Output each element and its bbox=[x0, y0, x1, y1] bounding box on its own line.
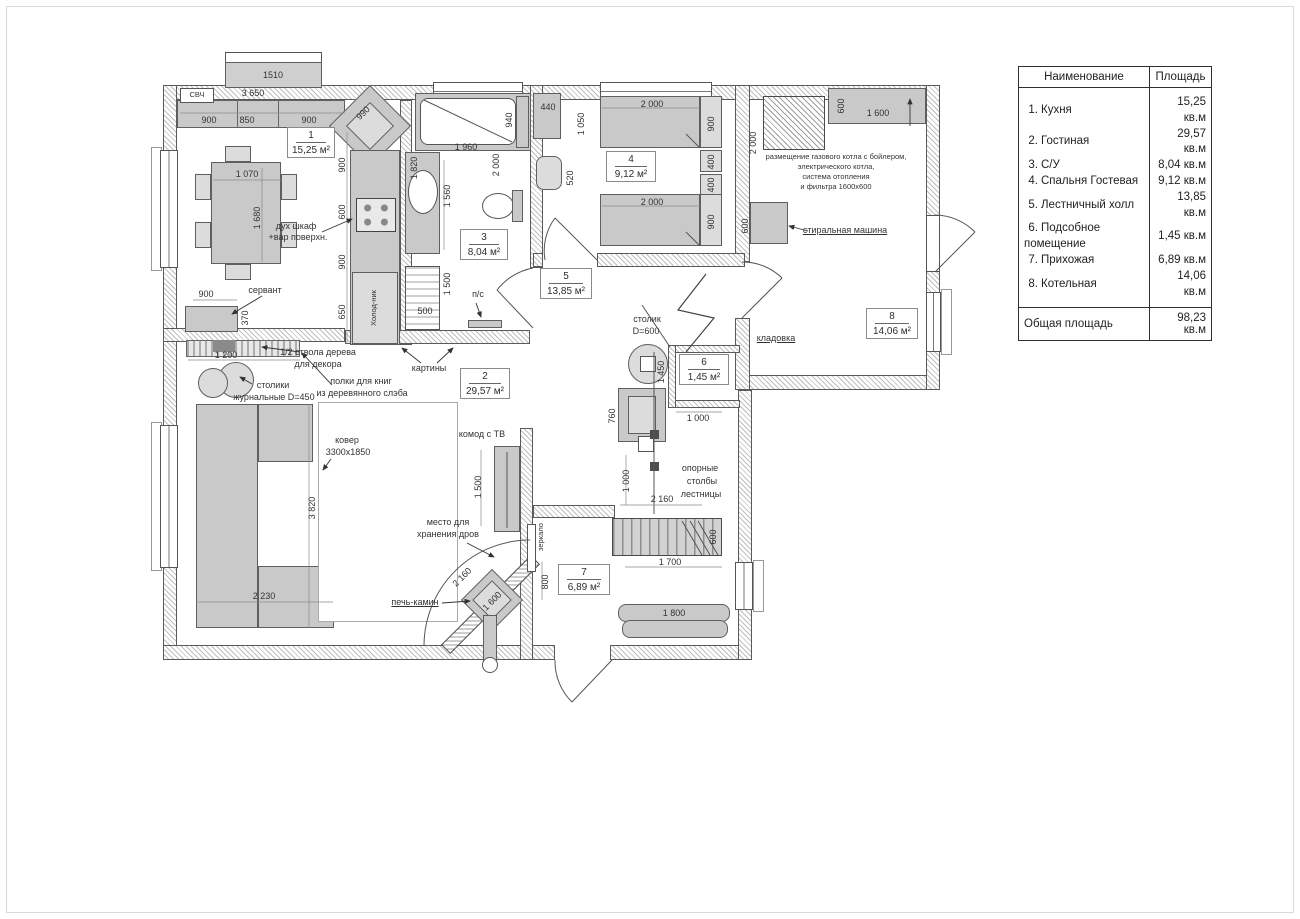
staircase bbox=[612, 518, 722, 556]
legend-room-name: 2.Гостиная bbox=[1019, 127, 1150, 159]
fridge-label: Холод-ник bbox=[369, 290, 379, 326]
stair-post bbox=[650, 430, 659, 439]
window-living bbox=[160, 425, 178, 568]
room-area: 15,25 м² bbox=[290, 143, 332, 156]
carpet-label: 3300х1850 bbox=[326, 447, 371, 457]
dim-wardrobe: 1 700 bbox=[659, 557, 682, 567]
dim: 800 bbox=[540, 574, 550, 589]
dim-bed-width: 900 bbox=[706, 116, 716, 131]
dim-sofa: 2 230 bbox=[253, 591, 276, 601]
oven-label: +вар поверхн. bbox=[269, 232, 328, 242]
book-shelves-label: из деревянного слэба bbox=[316, 388, 407, 398]
toilet-tank bbox=[512, 190, 523, 222]
legend-room-area: 1,45 кв.м bbox=[1149, 221, 1211, 253]
legend-row: 1.Кухня15,25 кв.м bbox=[1019, 88, 1212, 127]
dim: 440 bbox=[540, 102, 555, 112]
dim-bed-width: 900 bbox=[706, 214, 716, 229]
firewood-label: хранения дров bbox=[417, 529, 479, 539]
microwave-label: СВЧ bbox=[189, 90, 204, 100]
legend-room-area: 8,04 кв.м bbox=[1149, 158, 1211, 174]
carpet-label: ковер bbox=[335, 435, 359, 445]
dim-table-length: 1 680 bbox=[252, 207, 262, 230]
window-sill bbox=[753, 560, 764, 612]
room-label-closet: 6 1,45 м² bbox=[679, 354, 729, 385]
sideboard-label: сервант bbox=[248, 285, 281, 295]
legend-room-area: 29,57 кв.м bbox=[1149, 127, 1211, 159]
room-area: 8,04 м² bbox=[463, 245, 505, 258]
bench bbox=[622, 620, 728, 638]
floor-plan-page: 1510 3 650 900 850 900 990 1 070 1 680 9… bbox=[0, 0, 1300, 919]
legend-room-area: 9,12 кв.м bbox=[1149, 174, 1211, 190]
legend-room-number: 5. bbox=[1024, 198, 1038, 214]
dim: 520 bbox=[565, 170, 575, 185]
dim: 1 820 bbox=[409, 157, 419, 180]
dim: 600 bbox=[337, 204, 347, 219]
legend-room-name: 4.Спальня Гостевая bbox=[1019, 174, 1150, 190]
sideboard bbox=[185, 306, 238, 332]
sofa-chaise bbox=[258, 404, 313, 462]
coffee-table bbox=[198, 368, 228, 398]
room-number: 6 bbox=[688, 357, 720, 370]
bath-cabinet bbox=[405, 266, 440, 330]
dim-closet: 1 000 bbox=[687, 413, 710, 423]
dim-stairs: 2 160 bbox=[651, 494, 674, 504]
bedroom-cabinet bbox=[533, 93, 561, 139]
room-label-bedroom: 4 9,12 м² bbox=[606, 151, 656, 182]
window-kitchen bbox=[160, 150, 178, 268]
tv-commode-label: комод с ТВ bbox=[459, 429, 505, 439]
dim-shelf: 1 600 bbox=[867, 108, 890, 118]
dim: 1 050 bbox=[576, 113, 586, 136]
dim: 2 000 bbox=[748, 132, 758, 155]
dim: 900 bbox=[337, 254, 347, 269]
dim-bed: 2 000 bbox=[641, 99, 664, 109]
wall-boiler-left-a bbox=[735, 85, 750, 262]
oven-label: дух шкаф bbox=[276, 221, 317, 231]
book-shelves-label: полки для книг bbox=[330, 376, 392, 386]
dim-bench: 1 800 bbox=[663, 608, 686, 618]
legend-row: 4.Спальня Гостевая9,12 кв.м bbox=[1019, 174, 1212, 190]
area-legend-table: Наименование Площадь 1.Кухня15,25 кв.м2.… bbox=[1018, 66, 1212, 341]
room-number: 3 bbox=[469, 232, 499, 245]
legend-room-number: 3. bbox=[1024, 158, 1038, 174]
legend-room-number: 2. bbox=[1024, 134, 1038, 150]
log-decor-label: для декора bbox=[294, 359, 341, 369]
bedroom-chair bbox=[536, 156, 562, 190]
window-sill bbox=[941, 289, 952, 355]
towel-dryer-label: п/с bbox=[472, 289, 484, 299]
fireplace-label: печь-камин bbox=[391, 597, 438, 607]
chair bbox=[195, 174, 211, 200]
legend-room-name: 1.Кухня bbox=[1019, 88, 1150, 127]
room-area: 9,12 м² bbox=[609, 167, 653, 180]
bathtub-inner bbox=[420, 98, 516, 145]
legend-room-number: 4. bbox=[1024, 174, 1038, 190]
stair-posts-label: опорные bbox=[682, 463, 718, 473]
pictures-label: картины bbox=[412, 363, 447, 373]
room-label-kitchen: 1 15,25 м² bbox=[287, 127, 335, 158]
legend-room-area: 6,89 кв.м bbox=[1149, 253, 1211, 269]
legend-total-label: Общая площадь bbox=[1019, 308, 1150, 341]
chair bbox=[281, 174, 297, 200]
dim: 900 bbox=[201, 115, 216, 125]
legend-room-number: 1. bbox=[1024, 103, 1038, 119]
legend-room-name: 3.С/У bbox=[1019, 158, 1150, 174]
dim: 1 000 bbox=[621, 470, 631, 493]
towel-rail bbox=[468, 320, 502, 328]
room-number: 5 bbox=[549, 271, 583, 284]
door-opening-boiler-exterior bbox=[926, 215, 940, 272]
wall-closet-bottom bbox=[668, 400, 740, 408]
legend-total-area: 98,23 кв.м bbox=[1149, 308, 1211, 341]
room-area: 14,06 м² bbox=[869, 324, 915, 337]
legend-row: 7.Прихожая6,89 кв.м bbox=[1019, 253, 1212, 269]
dim-log: 1 200 bbox=[215, 350, 238, 360]
legend-room-name: 7.Прихожая bbox=[1019, 253, 1150, 269]
coffee-tables-label: журнальные D=450 bbox=[233, 392, 314, 402]
counter-divider bbox=[278, 100, 279, 128]
legend-row: 3.С/У8,04 кв.м bbox=[1019, 158, 1212, 174]
mirror-label: зеркало bbox=[536, 523, 546, 551]
dim-sideboard: 900 bbox=[198, 289, 213, 299]
round-table-label: D=600 bbox=[633, 326, 660, 336]
legend-room-area: 15,25 кв.м bbox=[1149, 88, 1211, 127]
room-area: 13,85 м² bbox=[543, 284, 589, 297]
washing-machine-label: стиральная машина bbox=[803, 225, 887, 235]
room-label-boiler: 8 14,06 м² bbox=[866, 308, 918, 339]
wall-boiler-bottom bbox=[738, 375, 940, 390]
dim: 650 bbox=[337, 304, 347, 319]
dim: 600 bbox=[836, 98, 846, 113]
gas-boiler-zone bbox=[763, 96, 825, 150]
dim-sofa-length: 3 820 bbox=[307, 497, 317, 520]
wall-closet-top bbox=[668, 345, 740, 353]
wall-bedroom-south bbox=[597, 253, 745, 267]
room-area: 6,89 м² bbox=[561, 580, 607, 593]
bathtub-fixture bbox=[516, 96, 529, 148]
dim-porch: 1510 bbox=[263, 70, 283, 80]
legend-row: 6.Подсобное помещение1,45 кв.м bbox=[1019, 221, 1212, 253]
legend-room-name: 6.Подсобное помещение bbox=[1019, 221, 1150, 253]
dim-kitchen-total: 3 650 bbox=[242, 88, 265, 98]
window-boiler bbox=[926, 292, 941, 352]
wall-right-lower bbox=[738, 390, 752, 660]
legend-header-area: Площадь bbox=[1149, 67, 1211, 88]
room-label-bathroom: 3 8,04 м² bbox=[460, 229, 508, 260]
dim-sideboard-depth: 370 bbox=[240, 310, 250, 325]
room-area: 29,57 м² bbox=[463, 384, 507, 397]
washing-machine bbox=[750, 202, 788, 244]
dim: 1 450 bbox=[656, 361, 666, 384]
stair-posts-label: лестницы bbox=[681, 489, 722, 499]
chair bbox=[195, 222, 211, 248]
dim: 500 bbox=[417, 306, 432, 316]
storage-label: кладовка bbox=[757, 333, 795, 343]
dim-bed: 2 000 bbox=[641, 197, 664, 207]
boiler-note: размещение газового котла с бойлером, bbox=[766, 152, 907, 162]
window-hallway bbox=[735, 562, 753, 610]
boiler-note: электрического котла, bbox=[798, 162, 875, 172]
room-label-stair-hall: 5 13,85 м² bbox=[540, 268, 592, 299]
counter-divider bbox=[237, 100, 238, 128]
room-label-living: 2 29,57 м² bbox=[460, 368, 510, 399]
dim: 400 bbox=[706, 154, 716, 169]
room-number: 1 bbox=[296, 130, 326, 143]
boiler-note: система отопления bbox=[802, 172, 869, 182]
chair bbox=[225, 146, 251, 162]
legend-row: 5.Лестничный холл13,85 кв.м bbox=[1019, 190, 1212, 222]
round-table-leg bbox=[640, 356, 656, 372]
legend-row: 8.Котельная14,06 кв.м bbox=[1019, 269, 1212, 308]
wall-closet-left bbox=[668, 345, 676, 408]
sofa-left-arm bbox=[196, 404, 258, 628]
room-area: 1,45 м² bbox=[682, 370, 726, 383]
dim-washer: 600 bbox=[740, 218, 750, 233]
dim-bathtub-depth: 940 bbox=[504, 112, 514, 127]
wall-boiler-left-b bbox=[735, 318, 750, 390]
legend-room-area: 13,85 кв.м bbox=[1149, 190, 1211, 222]
firewood-label: место для bbox=[427, 517, 470, 527]
armchair-seat bbox=[628, 396, 656, 434]
dim: 1 560 bbox=[442, 185, 452, 208]
stove-cooktop bbox=[356, 198, 396, 232]
dim: 900 bbox=[301, 115, 316, 125]
room-number: 7 bbox=[567, 567, 601, 580]
log-decor-label: 1/2 ствола дерева bbox=[280, 347, 356, 357]
room-number: 8 bbox=[875, 311, 909, 324]
legend-room-number: 6. bbox=[1024, 221, 1038, 237]
dim: 400 bbox=[706, 177, 716, 192]
legend-room-name: 8.Котельная bbox=[1019, 269, 1150, 308]
legend-room-number: 7. bbox=[1024, 253, 1038, 269]
stair-post bbox=[650, 462, 659, 471]
chair bbox=[225, 264, 251, 280]
wall-bottom-right bbox=[610, 645, 752, 660]
legend-header-name: Наименование bbox=[1019, 67, 1150, 88]
legend-room-number: 8. bbox=[1024, 277, 1038, 293]
dim-armchair: 760 bbox=[607, 408, 617, 423]
wall-bedroom-south-stub bbox=[533, 253, 543, 267]
legend-row: 2.Гостиная29,57 кв.м bbox=[1019, 127, 1212, 159]
round-table-label: столик bbox=[633, 314, 661, 324]
dim-tv: 1 500 bbox=[473, 476, 483, 499]
dim-bathtub: 1 960 bbox=[455, 142, 478, 152]
dim: 1 500 bbox=[442, 273, 452, 296]
dim: 2 000 bbox=[491, 154, 501, 177]
room-label-hallway: 7 6,89 м² bbox=[558, 564, 610, 595]
toilet-bowl bbox=[482, 193, 514, 219]
wall-hallway-north bbox=[533, 505, 615, 518]
dim: 850 bbox=[239, 115, 254, 125]
boiler-note: и фильтра 1600х600 bbox=[800, 182, 871, 192]
dim: 900 bbox=[337, 157, 347, 172]
stair-posts-label: столбы bbox=[687, 476, 717, 486]
room-number: 4 bbox=[615, 154, 647, 167]
tv-commode bbox=[494, 446, 520, 532]
mirror bbox=[527, 524, 536, 572]
dim-wardrobe-depth: 600 bbox=[708, 529, 718, 544]
legend-room-name: 5.Лестничный холл bbox=[1019, 190, 1150, 222]
legend-room-area: 14,06 кв.м bbox=[1149, 269, 1211, 308]
room-number: 2 bbox=[469, 371, 501, 384]
coffee-tables-label: столики bbox=[257, 380, 290, 390]
chimney-flue bbox=[482, 657, 498, 673]
dim-table-width: 1 070 bbox=[236, 169, 259, 179]
